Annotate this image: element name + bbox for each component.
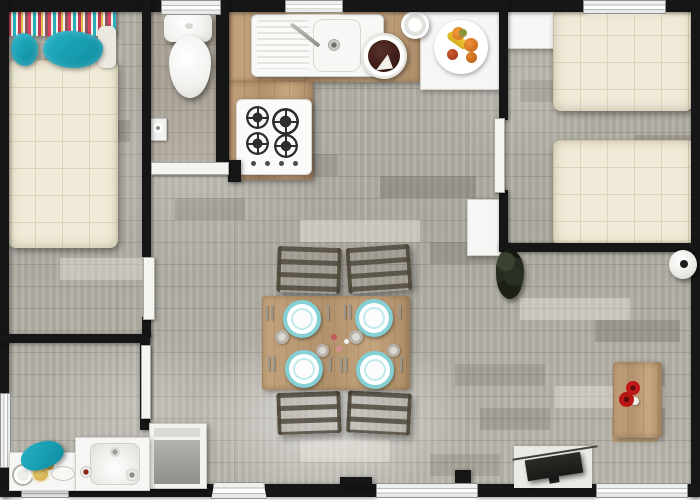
knife — [400, 357, 402, 372]
fork — [340, 357, 342, 372]
sink-drainboard — [257, 20, 309, 69]
entrance-door — [211, 482, 267, 499]
door-bathroom — [141, 345, 151, 419]
hob-knob — [293, 161, 298, 166]
floor-plank-patch — [380, 176, 476, 198]
wall-stub — [340, 477, 372, 487]
vanity-knob — [126, 469, 138, 481]
floorplan-canvas — [0, 0, 700, 500]
fork — [349, 304, 351, 319]
green-fruit — [459, 29, 467, 37]
coffee-cup — [401, 11, 429, 39]
knife — [327, 305, 329, 320]
double-bed — [8, 60, 118, 248]
dining-chair — [276, 246, 342, 294]
fork — [344, 304, 346, 319]
vanity-faucet — [110, 447, 120, 457]
fridge-cabinet — [467, 199, 502, 256]
hob-knob — [251, 161, 256, 166]
floor-plank-patch — [455, 364, 545, 386]
round-stool-center — [680, 260, 688, 268]
washing-machine-front — [154, 440, 200, 484]
condiment — [344, 339, 349, 344]
toilet-flush-button — [185, 23, 193, 29]
single-bed-bottom — [553, 140, 695, 246]
single-bed-top — [553, 8, 693, 111]
window-wc — [161, 0, 221, 15]
place-setting-plate — [283, 300, 321, 338]
knife — [329, 356, 331, 371]
washing-machine-top — [154, 428, 200, 437]
place-setting-plate — [356, 351, 394, 389]
place-setting-plate — [285, 350, 323, 388]
fork — [266, 305, 268, 320]
floor-plank-patch — [300, 440, 390, 462]
hob-burner — [272, 108, 299, 135]
wall — [341, 0, 584, 12]
floor-plank-patch — [520, 298, 630, 320]
wall-twin-west — [499, 0, 508, 120]
red-flower — [619, 392, 634, 407]
sink-drain — [328, 39, 340, 51]
wall-bedroom-east — [142, 0, 151, 257]
orange-fruit — [464, 38, 478, 52]
floor-plank-patch — [480, 408, 550, 430]
hob-burner — [246, 132, 269, 155]
fork — [273, 356, 275, 371]
soap-tray — [51, 466, 75, 481]
wall-bathroom-north — [0, 334, 150, 343]
orange-fruit — [466, 52, 477, 63]
toilet-paper-roll — [153, 123, 163, 133]
door-wc — [151, 162, 229, 175]
window-living-1 — [376, 483, 478, 498]
saucer — [316, 344, 329, 357]
window-twin-bedroom — [583, 0, 666, 14]
knife — [399, 304, 401, 319]
vanity-knob-red — [80, 466, 92, 478]
window-kitchen — [285, 0, 343, 13]
fork — [345, 357, 347, 372]
condiment — [331, 334, 337, 340]
hob-burner — [246, 106, 269, 129]
wall — [0, 0, 163, 12]
door-master-bedroom — [143, 257, 155, 320]
hob-knob — [279, 161, 284, 166]
floor-plank-patch — [60, 258, 150, 280]
floor-plank-patch — [300, 220, 420, 242]
floor-plank-patch — [175, 198, 245, 220]
door-twin-bedroom — [494, 118, 505, 193]
hob-burner — [274, 134, 298, 158]
fork — [271, 305, 273, 320]
wall — [686, 484, 700, 497]
dining-chair — [346, 390, 412, 435]
wall-stub — [228, 160, 241, 182]
wall-wc-east — [216, 0, 229, 163]
wall-twin-south — [499, 243, 697, 252]
dining-chair — [276, 391, 341, 435]
condiment — [336, 346, 342, 352]
saucer — [387, 344, 400, 357]
fork — [268, 356, 270, 371]
red-fruit — [447, 49, 458, 60]
dining-chair — [345, 244, 412, 294]
saucer — [275, 330, 289, 344]
saucer — [349, 330, 363, 344]
window-living-2 — [596, 483, 688, 498]
hob-knob — [265, 161, 270, 166]
floor-plank-patch — [595, 320, 680, 342]
